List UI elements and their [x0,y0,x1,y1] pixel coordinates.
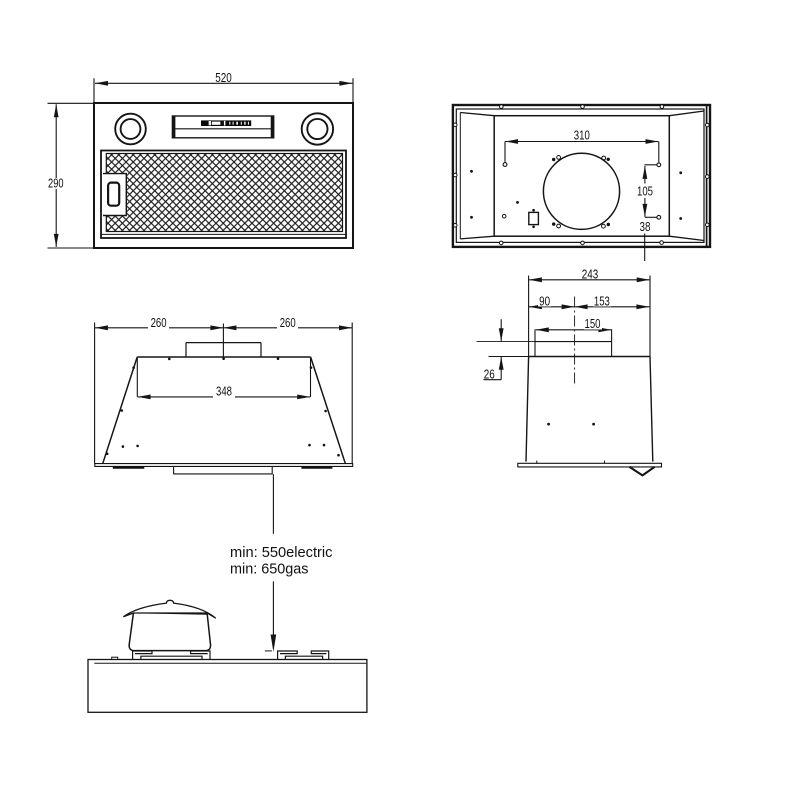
svg-text:243: 243 [582,267,599,281]
svg-text:min: 550electric: min: 550electric [230,544,333,561]
svg-text:min: 650gas: min: 650gas [230,561,309,578]
svg-text:290: 290 [48,177,64,191]
svg-text:520: 520 [215,71,232,85]
svg-text:310: 310 [574,129,590,143]
svg-text:105: 105 [637,185,653,199]
svg-text:348: 348 [216,384,232,398]
svg-text:150: 150 [585,317,601,331]
svg-text:38: 38 [640,220,651,234]
svg-text:90: 90 [539,294,550,308]
svg-text:260: 260 [151,316,167,330]
svg-text:260: 260 [280,316,296,330]
svg-text:153: 153 [594,294,610,308]
svg-text:26: 26 [484,367,495,381]
